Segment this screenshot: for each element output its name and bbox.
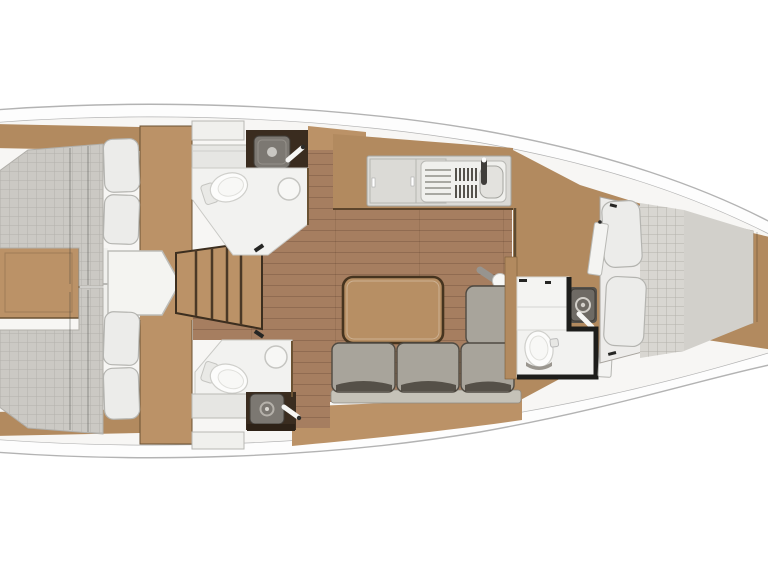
drain <box>581 303 585 307</box>
shower-drain <box>278 178 300 200</box>
shower-drain <box>265 346 287 368</box>
door-hinge <box>598 220 602 224</box>
door-handle <box>372 178 375 187</box>
vanity-counter <box>192 145 247 168</box>
flush-control <box>550 338 559 347</box>
center-cabinet <box>0 247 79 318</box>
faucet-tip <box>482 158 487 163</box>
vanity-counter <box>192 394 248 418</box>
faucet-tip <box>301 145 305 149</box>
door-hinge <box>519 279 527 282</box>
door-hinge <box>545 281 551 284</box>
pillow <box>103 194 140 244</box>
door-handle <box>411 177 414 186</box>
drain <box>265 407 269 411</box>
pillow <box>103 311 140 365</box>
pillow <box>603 276 647 347</box>
wardrobe-port <box>140 126 192 252</box>
floorplan-canvas <box>0 0 768 576</box>
vanity-counter <box>517 277 569 330</box>
wardrobe-starboard <box>140 318 192 444</box>
deck-hatch <box>192 432 244 449</box>
faucet-tip <box>297 416 301 420</box>
yacht-floorplan-image <box>0 0 768 576</box>
head-side-cabinet <box>505 257 517 379</box>
salon <box>331 270 521 403</box>
drain <box>267 147 277 157</box>
cabinet-base-trim <box>247 424 295 431</box>
pillow <box>103 367 140 419</box>
pillow <box>103 138 140 192</box>
salon-table <box>343 277 443 343</box>
quilt-texture <box>640 203 684 358</box>
deck-hatch <box>192 121 244 140</box>
